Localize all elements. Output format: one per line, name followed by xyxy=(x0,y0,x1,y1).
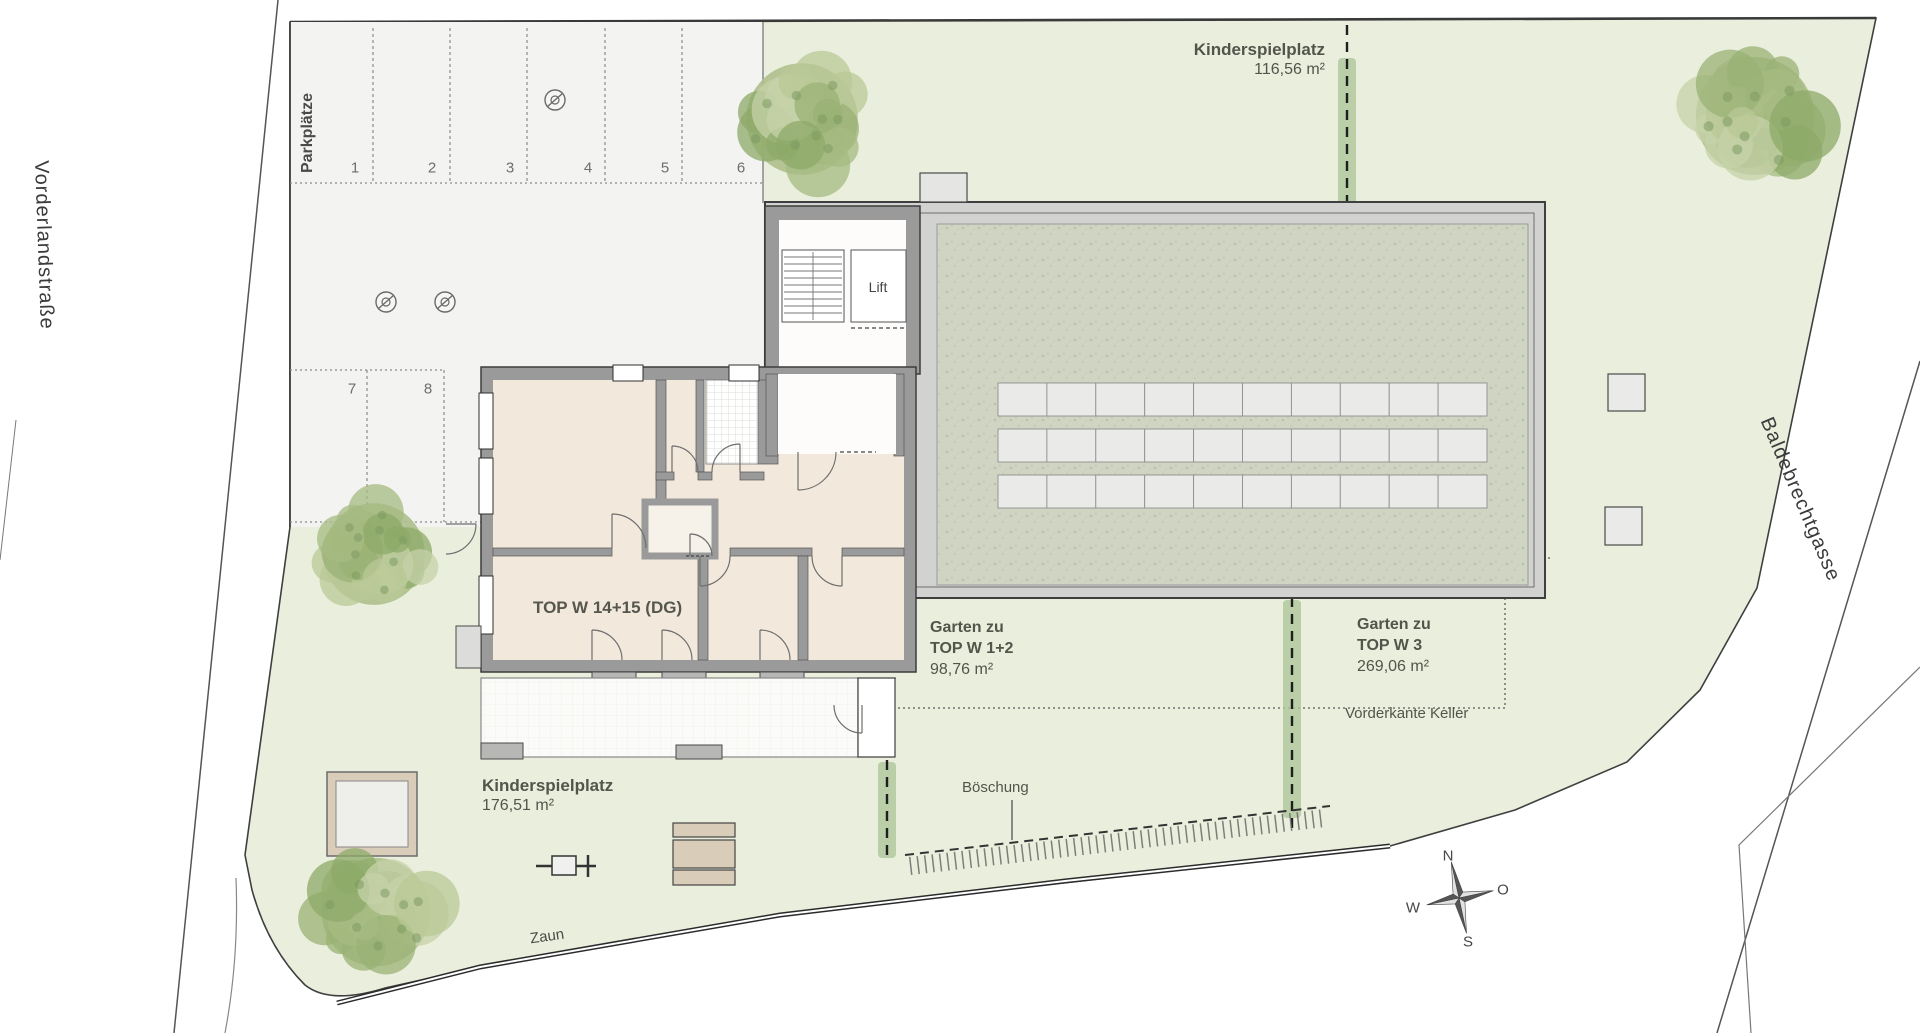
garden-w12-unit: TOP W 1+2 xyxy=(930,638,1013,659)
unit-label-text: TOP W 14+15 (DG) xyxy=(533,598,682,617)
compass-s-label: S xyxy=(1463,934,1473,951)
garden-w12-label: Garten zu TOP W 1+2 98,76 m² xyxy=(930,617,1013,680)
lift-label: Lift xyxy=(869,279,888,295)
parking-space-number: 5 xyxy=(661,160,669,177)
bench-table-icon xyxy=(673,823,735,885)
south-terrace xyxy=(481,678,895,759)
embankment-label: Böschung xyxy=(962,779,1029,796)
playground-south-name: Kinderspielplatz xyxy=(482,776,613,796)
parking-space-number: 8 xyxy=(424,381,432,398)
balcony-unit xyxy=(1608,374,1645,411)
garden-w3-label: Garten zu TOP W 3 269,06 m² xyxy=(1357,614,1431,677)
bathroom xyxy=(706,380,758,464)
parking-space-number: 2 xyxy=(428,160,436,177)
stairs xyxy=(782,250,844,322)
playground-north-label: Kinderspielplatz 116,56 m² xyxy=(1125,40,1325,80)
sandbox xyxy=(327,772,417,856)
parking-space-number: 6 xyxy=(737,160,745,177)
garden-w3-area: 269,06 m² xyxy=(1357,656,1431,677)
compass-e-label: O xyxy=(1497,882,1509,899)
wc-room xyxy=(645,502,715,556)
playground-south-area: 176,51 m² xyxy=(482,796,613,816)
playground-north-area: 116,56 m² xyxy=(1125,60,1325,80)
exterior-pillar xyxy=(456,626,481,668)
compass-rose-icon xyxy=(1419,855,1501,941)
parking-space-number: 1 xyxy=(351,160,359,177)
apartment-block xyxy=(446,365,916,684)
balcony-unit xyxy=(1605,507,1642,545)
site-plan: Vorderlandstraße Baldebrechtgasse Parkpl… xyxy=(0,0,1920,1033)
vestibule xyxy=(778,374,896,454)
site-plan-drawing xyxy=(0,0,1920,1033)
chimney xyxy=(920,173,967,202)
solar-panel-rows xyxy=(998,383,1487,508)
garden-w12-prefix: Garten zu xyxy=(930,617,1013,638)
stair-core xyxy=(765,206,920,374)
parking-space-number: 3 xyxy=(506,160,514,177)
parking-space-number: 4 xyxy=(584,160,592,177)
playground-south-label: Kinderspielplatz 176,51 m² xyxy=(482,776,613,816)
garden-w3-prefix: Garten zu xyxy=(1357,614,1431,635)
unit-label: TOP W 14+15 (DG) xyxy=(533,598,682,619)
garden-w3-unit: TOP W 3 xyxy=(1357,635,1431,656)
compass-w-label: W xyxy=(1406,900,1420,917)
garden-w12-area: 98,76 m² xyxy=(930,659,1013,680)
compass-n-label: N xyxy=(1443,848,1454,865)
parking-space-number: 7 xyxy=(348,381,356,398)
cellar-edge-label: Vorderkante Keller xyxy=(1345,705,1468,722)
parking-title: Parkplätze xyxy=(299,93,317,173)
playground-north-name: Kinderspielplatz xyxy=(1125,40,1325,60)
